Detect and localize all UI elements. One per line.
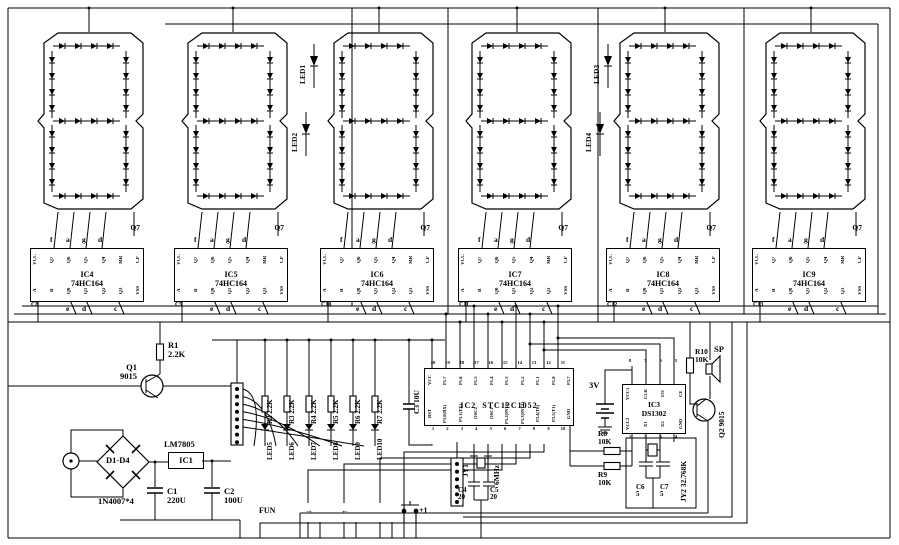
- resistor-label: R3 2.2K: [288, 364, 296, 424]
- segment-label-c: c: [114, 304, 117, 313]
- decoupling-cap-label: C11: [459, 302, 469, 308]
- q1-label: Q19015: [120, 363, 137, 381]
- shift-register-74hc164: Q7 f a g d VCCQ7 Q6Q5 Q4MR CP IC7 74HC16…: [458, 236, 570, 316]
- q2-label: Q2 9015: [718, 394, 726, 438]
- q2-transistor: [693, 399, 715, 421]
- cascade-q7-label: Q7: [420, 223, 430, 232]
- segment-label-f: f: [340, 235, 343, 244]
- segment-label-a: a: [788, 235, 792, 244]
- jy1-label: JY1: [462, 455, 470, 477]
- led-label: LED10: [376, 416, 384, 460]
- segment-label-d: d: [98, 235, 102, 244]
- decoupling-cap-label: C8: [31, 302, 38, 308]
- indicator-branch: R3 2.2K LED6: [276, 390, 300, 446]
- segment-label-e: e: [494, 304, 497, 313]
- c4-label: C420: [458, 487, 467, 502]
- r8-label: R810K: [598, 430, 611, 446]
- decoupling-cap-label: C13: [753, 302, 763, 308]
- ic-body: VCCQ7 Q6Q5 Q4MR CP IC7 74HC164 AB Q0Q1 Q…: [458, 248, 572, 302]
- colon-led-label: LED3: [592, 38, 601, 84]
- r10-resistor: [687, 358, 694, 373]
- colon-led-label: LED1: [298, 38, 307, 84]
- led-clock-schematic: R12.2K Q19015 D1-D4 1N4007*4 LM7805 IC1 …: [0, 0, 899, 545]
- ic-body: VCCQ7 Q6Q5 Q4MR CP IC5 74HC164 AB Q0Q1 Q…: [174, 248, 288, 302]
- led-label: LED9: [354, 416, 362, 460]
- segment-label-f: f: [194, 235, 197, 244]
- resistor-label: R4 2.2K: [310, 364, 318, 424]
- speaker-label: SP: [714, 345, 724, 354]
- segment-label-d2: d: [82, 304, 86, 313]
- segment-label-c: c: [690, 304, 693, 313]
- rtc-body: VCC1CLK I/OCE IC3DS1302 VCC2X1 X2GND: [622, 384, 686, 434]
- digit-3: [328, 33, 433, 209]
- segment-label-g: g: [372, 235, 376, 244]
- mcu-body: VCCP1.7P1.6 P1.5P1.4P1.3 P1.2P1.1P1.0 P3…: [424, 368, 574, 426]
- colon-led-symbol: [595, 112, 605, 156]
- c2-label: C2100U: [224, 487, 243, 505]
- indicator-branch: R6 2.2K LED9: [342, 390, 366, 446]
- button-left: ←: [353, 500, 375, 522]
- cascade-q7-label: Q7: [706, 223, 716, 232]
- decoupling-cap-label: C10: [321, 302, 331, 308]
- button-right-label: →: [305, 506, 313, 515]
- segment-label-d: d: [526, 235, 530, 244]
- segment-label-f: f: [626, 235, 629, 244]
- decoupling-cap-label: C9: [175, 302, 182, 308]
- ic-body: VCCQ7 Q6Q5 Q4MR CP IC8 74HC164 AB Q0Q1 Q…: [606, 248, 720, 302]
- segment-label-g: g: [226, 235, 230, 244]
- colon-led: LED1: [298, 44, 320, 88]
- ic-body: VCCQ7 Q6Q5 Q4MR CP IC9 74HC164 AB Q0Q1 Q…: [752, 248, 866, 302]
- digit-4: [466, 33, 571, 209]
- regulator-box: IC1: [168, 452, 204, 469]
- indicator-branch: R5 2.2K LED8: [320, 390, 344, 446]
- battery-3v: [596, 404, 614, 418]
- resistor-label: R7 2.2K: [376, 364, 384, 424]
- bridge-part-label: 1N4007*4: [98, 497, 134, 506]
- bridge-label: D1-D4: [106, 456, 130, 465]
- c1-capacitor: [147, 488, 163, 493]
- segment-label-a: a: [642, 235, 646, 244]
- shift-register-74hc164: Q7 f a g d VCCQ7 Q6Q5 Q4MR CP IC5 74HC16…: [174, 236, 286, 316]
- ic-body: VCCQ7 Q6Q5 Q4MR CP IC4 74HC164 AB Q0Q1 Q…: [30, 248, 144, 302]
- segment-label-g: g: [82, 235, 86, 244]
- colon-led-label: LED4: [584, 106, 593, 152]
- segment-label-g: g: [804, 235, 808, 244]
- segment-label-f: f: [478, 235, 481, 244]
- segment-label-e: e: [66, 304, 69, 313]
- c6-label: C65: [636, 484, 645, 499]
- c3-label: C3 10U: [413, 366, 421, 414]
- c5-label: C520: [490, 487, 499, 502]
- shift-register-74hc164: Q7 f a g d VCCQ7 Q6Q5 Q4MR CP IC8 74HC16…: [606, 236, 718, 316]
- indicator-branch: R4 2.2K LED7: [298, 390, 322, 446]
- r8-resistor: [604, 448, 620, 455]
- segment-label-d: d: [242, 235, 246, 244]
- colon-led: LED2: [290, 112, 312, 156]
- rtc-block: 87 65 VCC1CLK I/OCE IC3DS1302 VCC2X1 X2G…: [622, 354, 684, 450]
- segment-label-a: a: [210, 235, 214, 244]
- segment-label-d2: d: [226, 304, 230, 313]
- r1-resistor: [157, 344, 164, 360]
- r10-label: R1010K: [695, 348, 708, 364]
- segment-label-d2: d: [510, 304, 514, 313]
- r9-resistor: [604, 463, 620, 470]
- led-label: LED5: [266, 416, 274, 460]
- resistor-label: R2 2.2K: [266, 364, 274, 424]
- segment-label-f: f: [50, 235, 53, 244]
- shift-register-74hc164: Q7 f a g d VCCQ7 Q6Q5 Q4MR CP IC6 74HC16…: [320, 236, 432, 316]
- segment-label-a: a: [356, 235, 360, 244]
- segment-label-c: c: [404, 304, 407, 313]
- indicator-branch: R2 2.2K LED5: [254, 390, 278, 446]
- segment-label-d2: d: [804, 304, 808, 313]
- jy1-freq-label: 6MHz: [493, 455, 501, 485]
- regulator-label: LM7805: [164, 440, 195, 449]
- decoupling-cap-label: C12: [607, 302, 617, 308]
- button-left-label: ←: [341, 506, 349, 515]
- segment-label-d: d: [388, 235, 392, 244]
- digit-6: [760, 33, 865, 209]
- segment-label-g: g: [658, 235, 662, 244]
- power-jack: [63, 453, 79, 469]
- colon-led-symbol: [309, 44, 319, 88]
- cascade-q7-label: Q7: [130, 223, 140, 232]
- segment-label-g: g: [510, 235, 514, 244]
- mcu-block: 201918 171615 141312 11 VCCP1.7P1.6 P1.5…: [424, 358, 572, 444]
- cascade-q7-label: Q7: [274, 223, 284, 232]
- segment-label-a: a: [494, 235, 498, 244]
- segment-label-e: e: [210, 304, 213, 313]
- segment-label-e: e: [788, 304, 791, 313]
- segment-label-f: f: [772, 235, 775, 244]
- segment-label-d2: d: [658, 304, 662, 313]
- digit-2: [182, 33, 287, 209]
- segment-label-c: c: [258, 304, 261, 313]
- segment-label-a: a: [66, 235, 70, 244]
- button-fun-label: FUN: [259, 506, 275, 515]
- r1-label: R12.2K: [168, 341, 185, 359]
- colon-led-symbol: [301, 112, 311, 156]
- cascade-q7-label: Q7: [852, 223, 862, 232]
- shift-register-74hc164: Q7 f a g d VCCQ7 Q6Q5 Q4MR CP IC4 74HC16…: [30, 236, 142, 316]
- indicator-branch: R7 2.2K LED10: [364, 390, 388, 446]
- digit-5: [614, 33, 719, 209]
- button-plus1-label: +1: [419, 506, 428, 515]
- shift-register-74hc164: Q7 f a g d VCCQ7 Q6Q5 Q4MR CP IC9 74HC16…: [752, 236, 864, 316]
- r9-label: R910K: [598, 471, 611, 487]
- colon-led-symbol: [603, 44, 613, 88]
- colon-led: LED4: [584, 112, 606, 156]
- segment-label-e: e: [356, 304, 359, 313]
- battery-label: 3V: [589, 381, 599, 390]
- c2-capacitor: [204, 488, 220, 493]
- button-fun: FUN: [281, 500, 303, 522]
- colon-led-label: LED2: [290, 106, 299, 152]
- led-label: LED7: [310, 416, 318, 460]
- segment-label-e: e: [642, 304, 645, 313]
- c1-label: C1220U: [167, 487, 186, 505]
- resistor-label: R5 2.2K: [332, 364, 340, 424]
- led-label: LED6: [288, 416, 296, 460]
- button-plus1: +1: [399, 500, 421, 522]
- segment-label-d: d: [674, 235, 678, 244]
- c7-label: C75: [660, 484, 669, 499]
- button-right: →: [317, 500, 339, 522]
- segment-label-c: c: [836, 304, 839, 313]
- led-label: LED8: [332, 416, 340, 460]
- segment-label-d: d: [820, 235, 824, 244]
- digit-1: [38, 33, 143, 209]
- resistor-label: R6 2.2K: [354, 364, 362, 424]
- ic-body: VCCQ7 Q6Q5 Q4MR CP IC6 74HC164 AB Q0Q1 Q…: [320, 248, 434, 302]
- segment-label-d2: d: [372, 304, 376, 313]
- cascade-q7-label: Q7: [558, 223, 568, 232]
- colon-led: LED3: [592, 44, 614, 88]
- segment-label-c: c: [542, 304, 545, 313]
